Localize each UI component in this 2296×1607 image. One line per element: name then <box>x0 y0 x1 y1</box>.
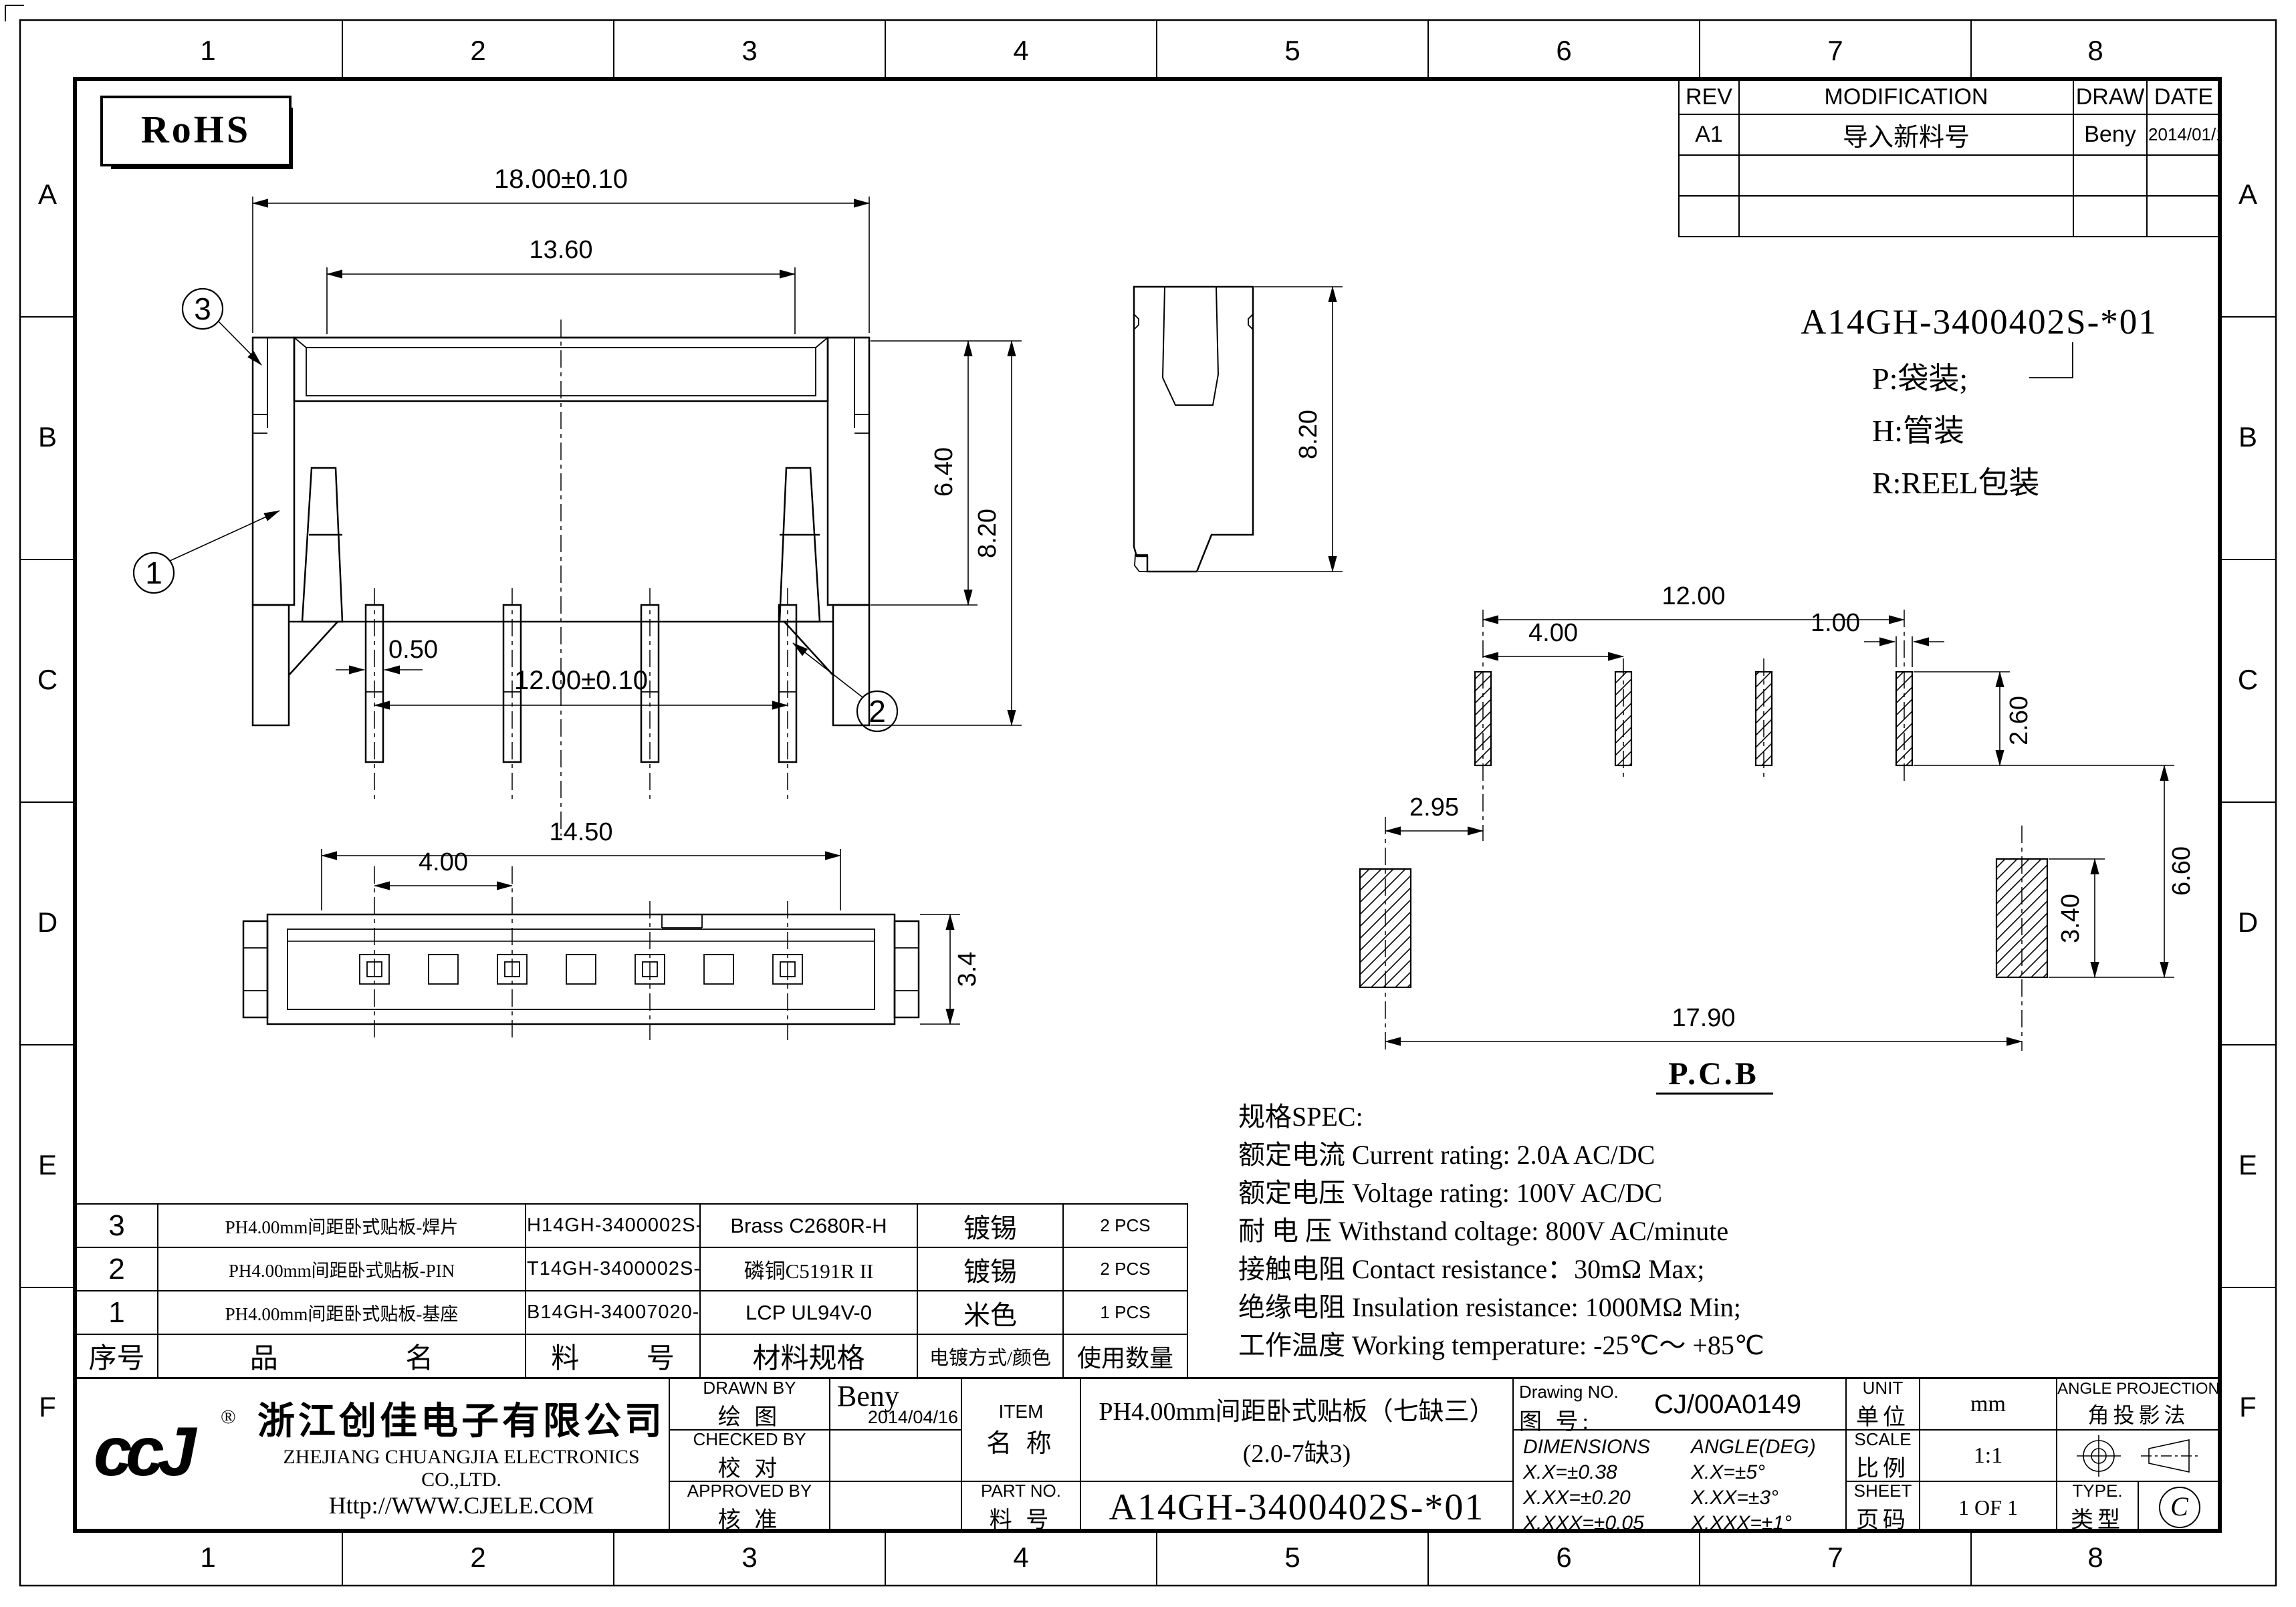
bom-qty: 2 PCS <box>1063 1204 1187 1247</box>
pcb-view <box>1360 610 2047 1051</box>
bom-qty: 2 PCS <box>1063 1247 1187 1291</box>
item-name-line1: PH4.00mm间距卧式贴板（七缺三） <box>1099 1390 1494 1427</box>
part-code: A14GH-3400402S-*01 <box>1799 302 2160 342</box>
angle-tolerances: ANGLE(DEG) X.X=±5° X.XX=±3° X.XXX=±1° <box>1691 1435 1816 1536</box>
rev-cell-date: 2014/01/16 <box>2147 114 2220 155</box>
tolerance-cell: DIMENSIONS X.X=±0.38 X.XX=±0.20 X.XXX=±0… <box>1512 1431 1845 1533</box>
bom-material: 磷铜C5191R II <box>700 1247 917 1291</box>
part-no-value: A14GH-3400402S-*01 <box>1080 1482 1512 1533</box>
dim-pcb-pitch: 4.00 <box>1528 619 1578 647</box>
bom-plating: 米色 <box>917 1291 1063 1334</box>
rev-cell-draw: Beny <box>2073 114 2147 155</box>
dim-front-opening: 13.60 <box>529 236 592 264</box>
item-name-line2: (2.0-7缺3) <box>1243 1433 1351 1469</box>
bom-name: PH4.00mm间距卧式贴板-基座 <box>158 1291 526 1334</box>
bom-name: PH4.00mm间距卧式贴板-PIN <box>158 1247 526 1291</box>
bom-material: LCP UL94V-0 <box>700 1291 917 1334</box>
grid-col-7-bottom: 7 <box>1809 1541 1862 1574</box>
grid-col-7-top: 7 <box>1809 35 1862 67</box>
bom-header-plating: 电镀方式/颜色 <box>917 1334 1063 1378</box>
item-label: ITEM名 称 <box>961 1379 1080 1482</box>
rev-cell-rev: A1 <box>1679 114 1739 155</box>
bom-no: 3 <box>76 1204 158 1247</box>
grid-col-6-bottom: 6 <box>1537 1541 1591 1574</box>
dim-front-8-20: 8.20 <box>973 509 1002 558</box>
grid-col-3-bottom: 3 <box>723 1541 776 1574</box>
approved-by-label: APPROVED BY核 准 <box>669 1482 829 1533</box>
spec-contact-resistance: 接触电阻 Contact resistance：30mΩ Max; <box>1238 1250 1764 1288</box>
grid-col-5-bottom: 5 <box>1266 1541 1319 1574</box>
dim-front-pin-span: 12.00±0.10 <box>514 666 648 695</box>
bom-header-name: 品 名 <box>158 1334 526 1378</box>
revision-table: REV MODIFICATION DRAW DATE A1 导入新料号 Beny… <box>1678 79 2221 237</box>
dim-front-overall-width: 18.00±0.10 <box>494 164 628 194</box>
grid-col-3-top: 3 <box>723 35 776 67</box>
checked-by-label: CHECKED BY校 对 <box>669 1431 829 1482</box>
checked-by-value <box>829 1431 961 1482</box>
grid-row-c-right: C <box>2228 664 2268 696</box>
drawn-date: 2014/04/16 <box>868 1407 958 1428</box>
rev-header-date: DATE <box>2147 80 2220 114</box>
rev-empty-cell <box>1679 155 1739 196</box>
dim-front-pin-width: 0.50 <box>388 636 438 664</box>
grid-col-4-top: 4 <box>994 35 1048 67</box>
unit-label: UNIT单位 <box>1845 1379 1919 1431</box>
scale-value: 1:1 <box>1919 1431 2056 1482</box>
bom-part-number: T14GH-3400002S-A01 <box>526 1247 700 1291</box>
dim-front-6-40: 6.40 <box>930 447 958 497</box>
bom-header-no: 序号 <box>76 1334 158 1378</box>
dim-top-pitch: 4.00 <box>419 848 468 876</box>
rev-empty-cell <box>1679 196 1739 237</box>
company-website: Http://WWW.CJELE.COM <box>254 1491 669 1519</box>
balloon-callouts <box>134 289 897 731</box>
company-name-cn: 浙江创佳电子有限公司 <box>254 1391 669 1445</box>
company-block: ccJ ® 浙江创佳电子有限公司 ZHEJIANG CHUANGJIA ELEC… <box>75 1379 669 1533</box>
grid-col-2-top: 2 <box>451 35 505 67</box>
grid-row-a-right: A <box>2228 178 2268 211</box>
bom-row-3: 3 PH4.00mm间距卧式贴板-焊片 H14GH-3400002S-A01 B… <box>76 1204 1187 1247</box>
grid-col-4-bottom: 4 <box>994 1541 1048 1574</box>
dim-top-body-height: 3.4 <box>953 952 982 987</box>
rev-cell-modification: 导入新料号 <box>1739 114 2073 155</box>
item-value: PH4.00mm间距卧式贴板（七缺三） (2.0-7缺3) <box>1080 1379 1512 1482</box>
bom-header-row: 序号 品 名 料 号 材料规格 电镀方式/颜色 使用数量 <box>76 1334 1187 1378</box>
bom-row-2: 2 PH4.00mm间距卧式贴板-PIN T14GH-3400002S-A01 … <box>76 1247 1187 1291</box>
drawn-by-label: DRAWN BY绘 图 <box>669 1379 829 1431</box>
balloon-1: 1 <box>145 555 162 590</box>
title-block: ccJ ® 浙江创佳电子有限公司 ZHEJIANG CHUANGJIA ELEC… <box>75 1377 2220 1531</box>
bom-plating: 镀锡 <box>917 1247 1063 1291</box>
approved-by-value <box>829 1482 961 1533</box>
rev-header-draw: DRAW <box>2073 80 2147 114</box>
dim-pcb-tab-height: 3.40 <box>2057 894 2085 943</box>
rev-header-modification: MODIFICATION <box>1739 80 2073 114</box>
registered-mark-icon: ® <box>221 1406 236 1429</box>
drawn-by-value: Beny 2014/04/16 <box>829 1379 961 1431</box>
bom-no: 1 <box>76 1291 158 1334</box>
drawing-no-cell: Drawing NO. 图 号: CJ/00A0149 <box>1512 1379 1845 1431</box>
dim-side-height: 8.20 <box>1294 410 1323 459</box>
grid-col-1-top: 1 <box>181 35 235 67</box>
grid-row-d-left: D <box>27 906 68 939</box>
grid-row-e-left: E <box>27 1149 68 1181</box>
bom-table: 3 PH4.00mm间距卧式贴板-焊片 H14GH-3400002S-A01 B… <box>75 1203 1188 1378</box>
scale-label: SCALE比例 <box>1845 1431 1919 1482</box>
dim-top-body-width: 14.50 <box>549 818 612 846</box>
grid-row-a-left: A <box>27 178 68 211</box>
unit-value: mm <box>1919 1379 2056 1431</box>
pcb-dimensions <box>1385 620 2174 1094</box>
legend-reel: R:REEL包装 <box>1872 457 2039 509</box>
balloon-2: 2 <box>869 694 886 729</box>
spec-title: 规格SPEC: <box>1238 1098 1764 1136</box>
grid-row-b-right: B <box>2228 421 2268 453</box>
sheet-value: 1 OF 1 <box>1919 1482 2056 1533</box>
packaging-legend: P:袋装; H:管装 R:REEL包装 <box>1872 353 2039 509</box>
grid-row-e-right: E <box>2228 1149 2268 1181</box>
bom-part-number: B14GH-34007020-P01 <box>526 1291 700 1334</box>
type-label: TYPE.类型 <box>2056 1482 2138 1533</box>
bom-qty: 1 PCS <box>1063 1291 1187 1334</box>
dim-pcb-span: 12.00 <box>1661 582 1725 610</box>
company-logo: ccJ <box>94 1412 190 1492</box>
spec-withstand: 耐 电 压 Withstand coltage: 800V AC/minute <box>1238 1212 1764 1250</box>
type-value: C <box>2138 1482 2220 1533</box>
dim-pcb-pad-width: 1.00 <box>1811 609 1860 637</box>
top-dimensions <box>322 849 960 1024</box>
bom-plating: 镀锡 <box>917 1204 1063 1247</box>
dimension-tolerances: DIMENSIONS X.X=±0.38 X.XX=±0.20 X.XXX=±0… <box>1523 1435 1650 1536</box>
bom-row-1: 1 PH4.00mm间距卧式贴板-基座 B14GH-34007020-P01 L… <box>76 1291 1187 1334</box>
rohs-logo: RoHS <box>100 96 292 166</box>
spec-insulation-resistance: 绝缘电阻 Insulation resistance: 1000MΩ Min; <box>1238 1288 1764 1326</box>
grid-col-8-bottom: 8 <box>2069 1541 2122 1574</box>
bom-material: Brass C2680R-H <box>700 1204 917 1247</box>
grid-row-f-right: F <box>2228 1391 2268 1423</box>
grid-col-2-bottom: 2 <box>451 1541 505 1574</box>
grid-col-1-bottom: 1 <box>181 1541 235 1574</box>
grid-col-6-top: 6 <box>1537 35 1591 67</box>
bom-name: PH4.00mm间距卧式贴板-焊片 <box>158 1204 526 1247</box>
spec-working-temperature: 工作温度 Working temperature: -25℃～ +85℃ <box>1238 1326 1764 1364</box>
dim-pcb-row-gap: 6.60 <box>2168 846 2196 896</box>
company-name-en: ZHEJIANG CHUANGJIA ELECTRONICS CO.,LTD. <box>254 1446 669 1491</box>
bom-part-number: H14GH-3400002S-A01 <box>526 1204 700 1247</box>
front-dimensions <box>253 197 1022 725</box>
dim-pcb-corner-offset: 2.95 <box>1409 793 1459 822</box>
dim-pcb-pad-height: 2.60 <box>2005 696 2033 745</box>
bom-header-pn: 料 号 <box>526 1334 700 1378</box>
balloon-3: 3 <box>194 291 211 326</box>
drawing-no-value: CJ/00A0149 <box>1654 1390 1801 1420</box>
grid-row-c-left: C <box>27 664 68 696</box>
grid-col-5-top: 5 <box>1266 35 1319 67</box>
sheet-label: SHEET页码 <box>1845 1482 1919 1533</box>
projection-symbol-icon <box>2056 1431 2220 1482</box>
grid-col-8-top: 8 <box>2069 35 2122 67</box>
projection-label: ANGLE PROJECTION角投影法 <box>2056 1379 2220 1431</box>
bom-no: 2 <box>76 1247 158 1291</box>
side-view <box>1134 287 1253 572</box>
part-no-label: PART NO.料 号 <box>961 1482 1080 1533</box>
spec-voltage: 额定电压 Voltage rating: 100V AC/DC <box>1238 1174 1764 1212</box>
spec-current: 额定电流 Current rating: 2.0A AC/DC <box>1238 1136 1764 1174</box>
grid-row-f-left: F <box>27 1391 68 1423</box>
bom-header-qty: 使用数量 <box>1063 1334 1187 1378</box>
spec-block: 规格SPEC: 额定电流 Current rating: 2.0A AC/DC … <box>1238 1098 1764 1364</box>
front-view <box>253 320 869 836</box>
type-c-badge: C <box>2159 1487 2200 1528</box>
bom-header-material: 材料规格 <box>700 1334 917 1378</box>
legend-bag: P:袋装; <box>1872 353 2039 405</box>
rev-header-rev: REV <box>1679 80 1739 114</box>
pcb-view-label: P.C.B <box>1668 1056 1759 1092</box>
top-view <box>243 866 919 1040</box>
drawing-sheet: 18.00±0.10 13.60 6.40 8.20 0.50 12.00±0.… <box>0 0 2296 1607</box>
grid-row-d-right: D <box>2228 906 2268 939</box>
legend-tube: H:管装 <box>1872 405 2039 457</box>
dim-pcb-tab-span: 17.90 <box>1672 1004 1735 1032</box>
grid-row-b-left: B <box>27 421 68 453</box>
